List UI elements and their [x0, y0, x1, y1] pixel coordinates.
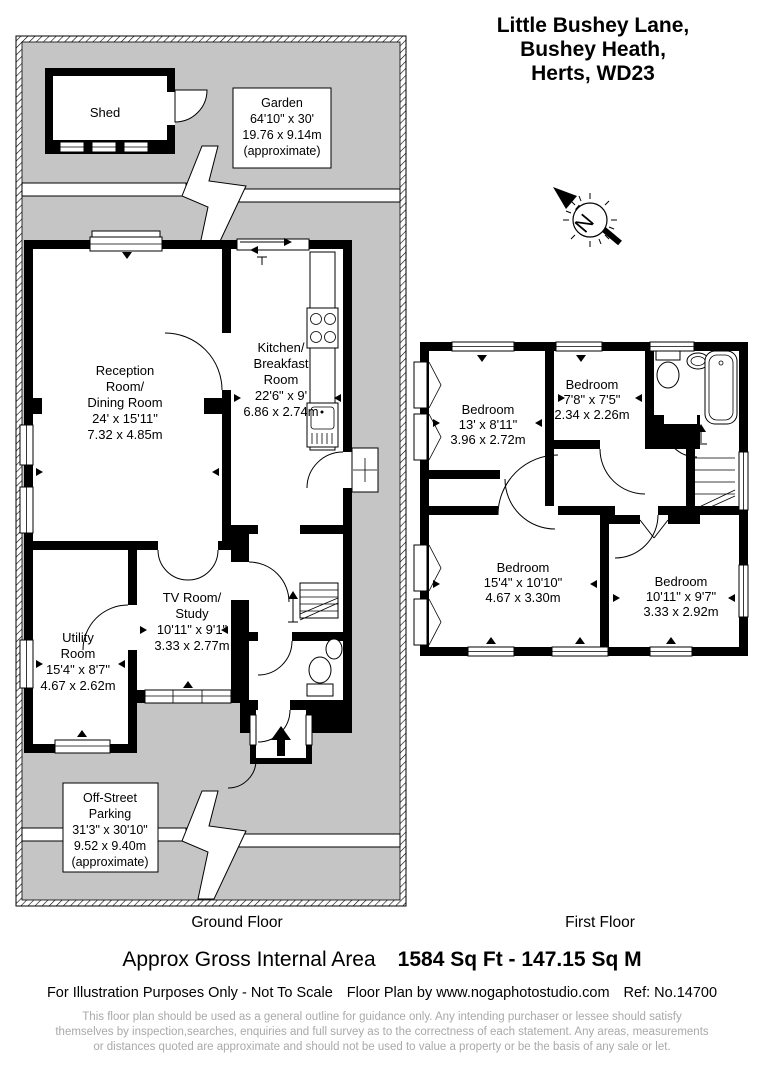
- bathtub-icon: [705, 351, 737, 424]
- disclaimer-line: themselves by inspection,searches, enqui…: [55, 1026, 709, 1038]
- room-label-line: 10'11" x 9'7": [646, 589, 717, 604]
- address-line-1: Little Bushey Lane,: [497, 14, 690, 37]
- toilet-icon: [656, 351, 680, 388]
- room-label-line: 2.34 x 2.26m: [554, 407, 629, 422]
- room-label-line: Room: [264, 372, 299, 387]
- area-label: Approx Gross Internal Area: [122, 948, 376, 971]
- room-label-line: Bedroom: [655, 574, 708, 589]
- disclaimer-line: or distances quoted are approximate and …: [93, 1041, 670, 1053]
- room-label-line: 24' x 15'11": [92, 411, 158, 426]
- wc-toilet-icon: [307, 657, 333, 696]
- floor-plan-credit: Floor Plan by www.nogaphotostudio.com: [347, 985, 610, 1001]
- bedroom-10-label: Bedroom 10'11" x 9'7" 3.33 x 2.92m: [643, 574, 718, 619]
- room-label-line: Study: [175, 606, 209, 621]
- room-label-line: Breakfast: [254, 356, 309, 371]
- room-label-line: 7.32 x 4.85m: [87, 427, 162, 442]
- property-address: Little Bushey Lane, Bushey Heath, Herts,…: [497, 14, 690, 85]
- room-label-line: 3.96 x 2.72m: [450, 432, 525, 447]
- room-label-line: 7'8" x 7'5": [564, 392, 621, 407]
- hob-icon: [307, 308, 338, 348]
- address-line-3: Herts, WD23: [531, 62, 655, 85]
- room-label-line: Utility: [62, 630, 94, 645]
- kitchen-side-porch: [352, 448, 378, 492]
- room-label-line: Room: [61, 646, 96, 661]
- parking-label-box: Off-Street Parking 31'3" x 30'10" 9.52 x…: [63, 783, 158, 872]
- room-label-line: 4.67 x 3.30m: [485, 590, 560, 605]
- ground-floor-caption: Ground Floor: [191, 914, 282, 931]
- room-label-line: Bedroom: [497, 560, 550, 575]
- floor-plan: Little Bushey Lane, Bushey Heath, Herts,…: [0, 0, 764, 1080]
- room-label-line: Reception: [96, 363, 155, 378]
- corridor-area: [429, 479, 545, 506]
- parking-label-line: 9.52 x 9.40m: [74, 839, 146, 853]
- reception-room-label: Reception Room/ Dining Room 24' x 15'11"…: [87, 363, 162, 442]
- room-label-line: 15'4" x 8'7": [46, 662, 110, 677]
- garden-label-line: Garden: [261, 96, 303, 110]
- garden-label-line: (approximate): [243, 144, 320, 158]
- address-line-2: Bushey Heath,: [520, 38, 666, 61]
- garden-label-box: Garden 64'10" x 30' 19.76 x 9.14m (appro…: [233, 88, 331, 168]
- gross-internal-area: Approx Gross Internal Area1584 Sq Ft - 1…: [122, 948, 641, 971]
- shed-label: Shed: [90, 105, 120, 120]
- disclaimer-line: This floor plan should be used as a gene…: [82, 1011, 682, 1023]
- illustration-note: For Illustration Purposes Only - Not To …: [47, 985, 333, 1001]
- bedroom-7-label: Bedroom 7'8" x 7'5" 2.34 x 2.26m: [554, 377, 629, 422]
- garden-label-line: 19.76 x 9.14m: [242, 128, 321, 142]
- parking-label-line: Off-Street: [83, 791, 137, 805]
- reference-number: Ref: No.14700: [624, 985, 718, 1001]
- room-label-line: 3.33 x 2.92m: [643, 604, 718, 619]
- room-label-line: 6.86 x 2.74m: [243, 404, 318, 419]
- room-label-line: Bedroom: [462, 402, 515, 417]
- area-value: 1584 Sq Ft - 147.15 Sq M: [398, 948, 642, 971]
- footer: Ground Floor First Floor Approx Gross In…: [47, 914, 717, 1053]
- room-label-line: 3.33 x 2.77m: [154, 638, 229, 653]
- room-label-line: Kitchen/: [258, 340, 305, 355]
- room-label-line: Bedroom: [566, 377, 619, 392]
- parking-label-line: 31'3" x 30'10": [72, 823, 148, 837]
- room-label-line: 22'6" x 9': [255, 388, 307, 403]
- parking-label-line: (approximate): [71, 855, 148, 869]
- tv-room-label: TV Room/ Study 10'11" x 9'1" 3.33 x 2.77…: [154, 590, 229, 653]
- room-label-line: 10'11" x 9'1": [157, 622, 228, 637]
- room-label-line: 4.67 x 2.62m: [40, 678, 115, 693]
- room-label-line: TV Room/: [163, 590, 222, 605]
- garden-label-line: 64'10" x 30': [250, 112, 314, 126]
- illustration-note-line: For Illustration Purposes Only - Not To …: [47, 985, 717, 1001]
- room-label-line: Dining Room: [87, 395, 162, 410]
- north-compass-icon: N: [553, 187, 620, 247]
- room-label-line: 13' x 8'11": [459, 417, 518, 432]
- room-label-line: 15'4" x 10'10": [484, 575, 563, 590]
- wc-basin-icon: [326, 639, 342, 659]
- bedroom-13-label: Bedroom 13' x 8'11" 3.96 x 2.72m: [450, 402, 525, 447]
- ground-floor-plan: Shed Garden 64'10" x 30' 19.76 x 9.14m (…: [16, 36, 406, 906]
- first-floor-plan: Bedroom 13' x 8'11" 3.96 x 2.72m Bedroom…: [414, 342, 748, 656]
- parking-label-line: Parking: [89, 807, 131, 821]
- room-label-line: Room/: [106, 379, 145, 394]
- first-floor-caption: First Floor: [565, 914, 635, 931]
